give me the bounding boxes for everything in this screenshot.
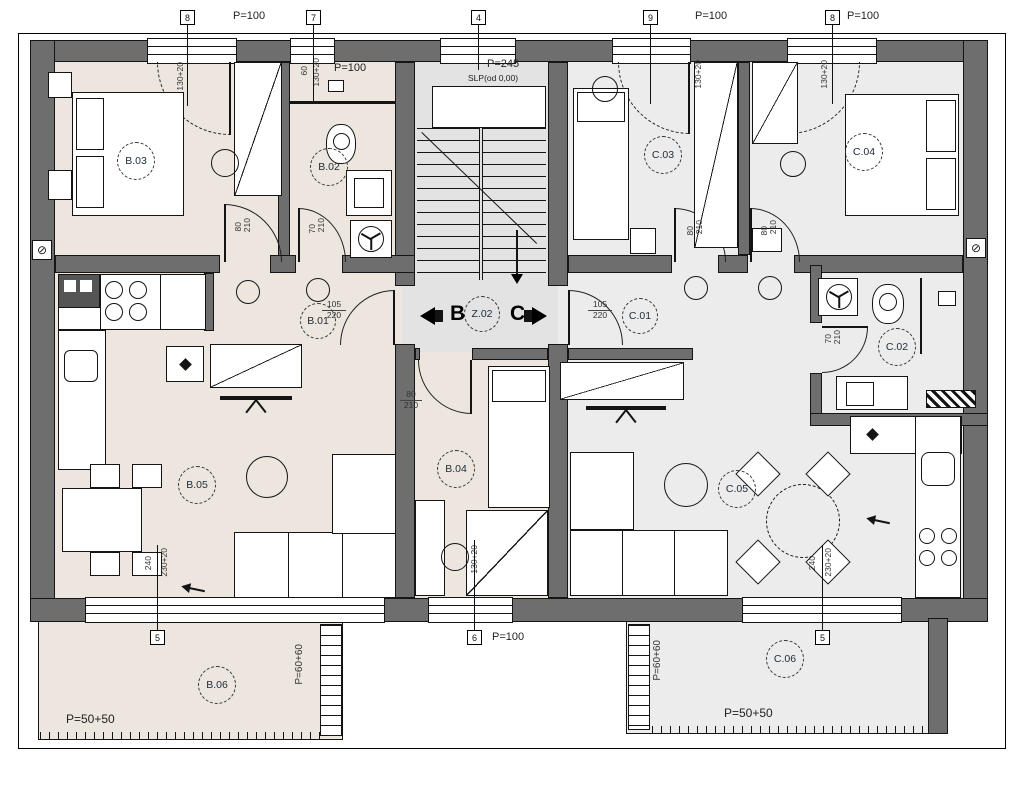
terrace-edge-b06	[40, 732, 320, 739]
area-label-p6060-b06: P=60+60	[294, 644, 306, 685]
wall-b04-top-b	[472, 348, 548, 360]
marker-line	[313, 24, 314, 104]
sofa-c05-seat	[570, 530, 728, 596]
sofa-b05-arm	[332, 454, 396, 534]
drain-icon: ⊘	[966, 238, 986, 258]
counter-divider	[100, 275, 101, 329]
dim-door-b03-h: 210	[243, 218, 253, 232]
nightstand	[48, 72, 72, 98]
room-label-b03: B.03	[117, 142, 155, 180]
window-b03	[147, 38, 237, 64]
area-label-p5050-b06: P=50+50	[66, 712, 115, 726]
wall-b-horiz-1	[55, 255, 220, 273]
dining-table-b05	[62, 488, 142, 552]
arrow-b-icon	[420, 307, 435, 325]
nav-letter-b: B	[450, 302, 465, 326]
wardrobe-c04	[752, 62, 798, 144]
stove-burner	[105, 281, 123, 299]
wall-c03-c04-divider	[738, 62, 750, 255]
stair-landing-upper	[432, 86, 546, 128]
area-label-p100-bottom: P=100	[492, 631, 524, 643]
room-label-c04: C.04	[845, 133, 883, 171]
marker-8-topleft: 8	[180, 10, 195, 25]
light-corridor-b1	[236, 280, 260, 304]
marker-line	[474, 540, 475, 630]
dim-window-c05-h: 230+20	[824, 548, 834, 577]
door-leaf-b04	[470, 360, 472, 414]
arrow-b-stem	[435, 310, 443, 322]
wall-stairs-right-a	[548, 62, 568, 286]
room-label-b02: B.02	[310, 148, 348, 186]
washing-machine-icon	[826, 284, 852, 310]
dim-door-b04: 80210	[400, 390, 422, 411]
stove-burner	[941, 528, 957, 544]
pillow	[76, 156, 104, 208]
dim-window-b05-h: 230+20	[160, 548, 170, 577]
toilet-bowl	[333, 133, 350, 150]
marker-line	[822, 545, 823, 630]
terrace-edge-c06	[652, 726, 928, 733]
partition-line-c02	[920, 278, 922, 354]
chair	[132, 464, 162, 488]
door-leaf-c02	[822, 326, 868, 328]
room-label-c03: C.03	[644, 136, 682, 174]
ceiling-light-c04	[780, 151, 806, 177]
door-leaf-c01-entry	[568, 290, 570, 345]
wall-stairs-left-a	[395, 62, 415, 286]
area-label-p6060-c06: P=60+60	[652, 640, 664, 681]
washing-machine-icon	[358, 226, 384, 252]
room-label-b04: B.04	[437, 450, 475, 488]
window-c03	[612, 38, 691, 64]
window-b05	[85, 597, 385, 623]
wall-c06-stub	[928, 618, 948, 734]
chair-b04	[441, 543, 469, 571]
railing-c06	[628, 624, 650, 730]
tv-stand-legs	[614, 410, 636, 424]
dim-c04-balcony: 130+20	[820, 60, 830, 89]
wall-right	[963, 40, 988, 622]
wall-b04-top-a	[415, 348, 420, 360]
marker-line	[478, 24, 479, 70]
area-label-p5050-c06: P=50+50	[724, 706, 773, 720]
pillow	[76, 98, 104, 150]
toilet-bowl	[879, 293, 897, 311]
room-label-c06: C.06	[766, 640, 804, 678]
dim-door-c04-h: 210	[769, 220, 779, 234]
sofa-divider	[622, 531, 623, 595]
sofa-divider	[342, 533, 343, 597]
room-label-c01: C.01	[622, 298, 658, 334]
door-leaf-b01-entry	[393, 290, 395, 345]
drain-icon: ⊘	[32, 240, 52, 260]
stove-burner	[919, 550, 935, 566]
sofa-divider	[674, 531, 675, 595]
area-label-p100-c03: P=100	[695, 10, 727, 22]
dim-b02-sill: 60	[300, 66, 310, 75]
stove-burner	[129, 281, 147, 299]
arrow-c-icon	[532, 307, 547, 325]
stove-burner	[919, 528, 935, 544]
wardrobe-b03	[234, 62, 282, 196]
area-label-p100-c04: P=100	[847, 10, 879, 22]
room-label-z02: Z.02	[464, 296, 500, 332]
ceiling-light-b03	[211, 149, 239, 177]
marker-5-b06: 5	[150, 630, 165, 645]
dim-door-c03-h: 210	[695, 220, 705, 234]
marker-5-c06: 5	[815, 630, 830, 645]
stool-c03	[630, 228, 656, 254]
area-label-p245: P=245	[487, 58, 519, 70]
light-corridor-c2	[758, 276, 782, 300]
marker-line	[187, 24, 188, 106]
window-b04	[428, 597, 513, 623]
room-label-b05: B.05	[178, 466, 216, 504]
door-leaf-b02-hall	[298, 208, 300, 262]
marker-line	[832, 24, 833, 104]
stove-burner	[129, 303, 147, 321]
vent-box	[328, 80, 344, 92]
door-leaf-c03-balcony	[688, 62, 690, 134]
wall-b02-divider-thin	[290, 101, 395, 104]
nav-letter-c: C	[510, 302, 525, 326]
stair-stringer	[479, 128, 483, 280]
sofa-divider	[288, 533, 289, 597]
light-corridor-c1	[684, 276, 708, 300]
kitchen-sink2-b05	[64, 350, 98, 382]
chair	[90, 464, 120, 488]
marker-8-topright: 8	[825, 10, 840, 25]
railing-b06	[320, 624, 342, 736]
stove-burner	[105, 303, 123, 321]
area-label-p100-b02: P=100	[334, 62, 366, 74]
tv-wardrobe-b05	[210, 344, 302, 388]
level-label-stairs: SLP(od 0,00)	[468, 73, 518, 83]
room-label-c02: C.02	[878, 328, 916, 366]
ceiling-light-c05	[664, 463, 708, 507]
dim-window-c05-w: 240	[808, 556, 818, 570]
sofa-b05-seat	[234, 532, 396, 598]
wall-stairs-left-b	[395, 344, 415, 598]
wall-c01-bottom	[568, 348, 693, 360]
floor-plan: ⊘ ⊘ B.03 B.02 B.01 Z.02 C.01 C.03 C.04 C…	[0, 0, 1024, 787]
pillow	[492, 370, 546, 402]
room-label-c05: C.05	[718, 470, 756, 508]
kitchen-counter-side-c05	[915, 416, 961, 598]
dim-window-b05-w: 240	[144, 556, 154, 570]
marker-4: 4	[471, 10, 486, 25]
stove-burner	[941, 550, 957, 566]
chair-c03	[592, 76, 618, 102]
tv-stand-legs	[244, 400, 266, 414]
stair-arrow-icon	[511, 274, 523, 284]
stair-route-down	[516, 230, 518, 276]
sink-basin	[354, 178, 384, 208]
ceiling-light-b05	[246, 456, 288, 498]
wardrobe-c01	[560, 362, 684, 400]
sink-small-c02	[938, 291, 956, 306]
dim-door-c01: 105220	[588, 300, 612, 321]
marker-line	[157, 545, 158, 630]
dim-door-b01: 105220	[322, 300, 346, 321]
marker-line	[650, 24, 651, 104]
marker-6: 6	[467, 630, 482, 645]
sink-bowl	[64, 280, 76, 292]
dim-c03-balcony: 130+20	[694, 60, 704, 89]
dim-door-b02-h: 210	[317, 218, 327, 232]
marker-9: 9	[643, 10, 658, 25]
kitchen-sink-c05	[921, 452, 955, 486]
arrow-c-stem	[524, 310, 532, 322]
sink-bowl	[80, 280, 92, 292]
nightstand	[48, 170, 72, 200]
wall-c-horiz-1	[568, 255, 672, 273]
door-leaf-c03-hall	[674, 208, 676, 262]
door-leaf-b03-hall	[224, 204, 226, 262]
marker-7: 7	[306, 10, 321, 25]
chair	[90, 552, 120, 576]
desk-b04	[415, 500, 445, 596]
vanity-basin	[846, 382, 874, 406]
door-leaf-b03-balcony	[229, 62, 231, 135]
counter-divider	[160, 275, 161, 329]
wall-left	[30, 40, 55, 622]
pillow	[926, 158, 956, 210]
area-label-p100-topleft: P=100	[233, 10, 265, 22]
radiator-c02	[926, 390, 976, 408]
sofa-c05-arm	[570, 452, 634, 530]
dim-door-c02-h: 210	[833, 330, 843, 344]
pillow	[926, 100, 956, 152]
dim-b03-balcony: 130+20	[176, 62, 186, 91]
room-label-b06: B.06	[198, 666, 236, 704]
